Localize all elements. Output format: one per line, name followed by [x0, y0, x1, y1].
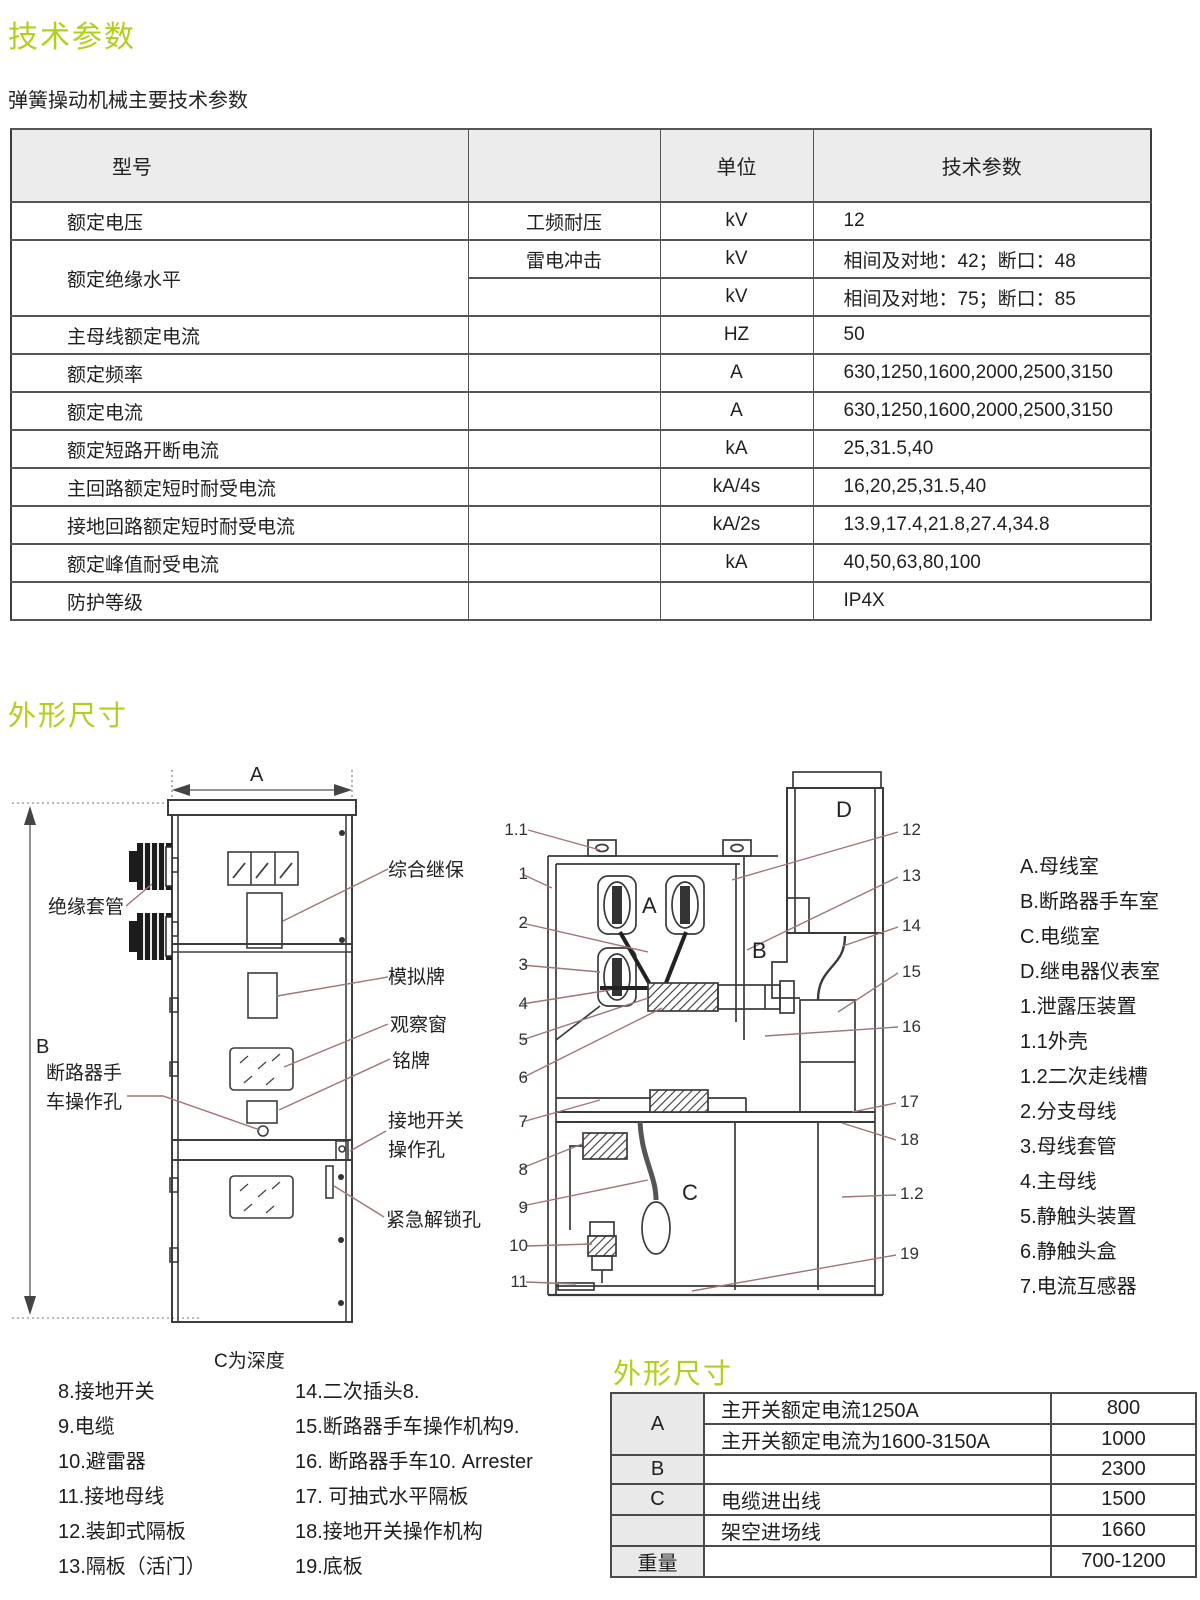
insulating-bushings	[129, 843, 172, 960]
table-row: 架空进场线 1660	[611, 1515, 1196, 1546]
legend-item: 2.分支母线	[1020, 1095, 1160, 1130]
datasheet-page: 技术参数 弹簧操动机械主要技术参数 型号 单位 技术参数 额定电压 工频耐压 k…	[0, 0, 1200, 1600]
spec-header-unit: 单位	[660, 129, 813, 202]
parts-list-right: 14.二次插头8. 15.断路器手车操作机构9. 16. 断路器手车10. Ar…	[295, 1375, 533, 1585]
legend-item: 6.静触头盒	[1020, 1235, 1160, 1270]
dim-key-c: C	[611, 1484, 704, 1515]
front-view-drawing	[12, 770, 356, 1322]
legend-item: 3.母线套管	[1020, 1130, 1160, 1165]
section-view-leader-lines	[522, 830, 898, 1291]
spec-header-params: 技术参数	[813, 129, 1151, 202]
depth-note: C为深度	[214, 1346, 285, 1373]
table-row: 额定短路开断电流 kA 25,31.5,40	[11, 430, 1151, 468]
compartment-b-label: B	[752, 938, 767, 964]
table-row: 防护等级 IP4X	[11, 582, 1151, 620]
callout-5: 5	[480, 1030, 528, 1050]
list-item: 12.装卸式隔板	[58, 1515, 206, 1550]
table-row: 额定电流 A 630,1250,1600,2000,2500,3150	[11, 392, 1151, 430]
spec-header-blank	[468, 129, 660, 202]
callout-1-1: 1.1	[480, 820, 528, 840]
label-nameplate: 铭牌	[392, 1047, 430, 1076]
table-row: B 2300	[611, 1455, 1196, 1484]
callout-6: 6	[480, 1068, 528, 1088]
callout-8: 8	[480, 1160, 528, 1180]
legend-item: 1.1外壳	[1020, 1025, 1160, 1060]
callout-3: 3	[480, 955, 528, 975]
section-title-dimensions-table: 外形尺寸	[613, 1352, 733, 1392]
legend-item: D.继电器仪表室	[1020, 955, 1160, 990]
table-row: 额定绝缘水平 雷电冲击 kV 相间及对地：42；断口：48	[11, 240, 1151, 278]
legend-item: 5.静触头装置	[1020, 1200, 1160, 1235]
legend-item: 1.2二次走线槽	[1020, 1060, 1160, 1095]
label-emergency-unlock: 紧急解锁孔	[386, 1206, 481, 1235]
legend-item: 4.主母线	[1020, 1165, 1160, 1200]
section-title-tech-params: 技术参数	[8, 12, 136, 56]
spec-header-model: 型号	[11, 129, 468, 202]
callout-1: 1	[480, 864, 528, 884]
list-item: 17. 可抽式水平隔板	[295, 1480, 533, 1515]
dim-b-letter: B	[36, 1036, 49, 1059]
legend-item: C.电缆室	[1020, 920, 1160, 955]
dim-key-weight: 重量	[611, 1546, 704, 1577]
list-item: 13.隔板（活门）	[58, 1550, 206, 1585]
compartment-d-label: D	[836, 797, 852, 823]
compartment-c-label: C	[682, 1180, 698, 1206]
spec-table: 型号 单位 技术参数 额定电压 工频耐压 kV 12 额定绝缘水平 雷电冲击 k…	[10, 128, 1152, 621]
spec-header-row: 型号 单位 技术参数	[11, 129, 1151, 202]
callout-18: 18	[900, 1130, 919, 1150]
callout-2: 2	[480, 913, 528, 933]
table-row: 主母线额定电流 HZ 50	[11, 316, 1151, 354]
compartment-a-label: A	[642, 893, 657, 919]
label-observation-window: 观察窗	[390, 1011, 447, 1040]
dim-key-a: A	[611, 1393, 704, 1455]
table-row: 额定电压 工频耐压 kV 12	[11, 202, 1151, 240]
list-item: 19.底板	[295, 1550, 533, 1585]
callout-14: 14	[902, 916, 921, 936]
label-earth-switch-hole: 接地开关 操作孔	[388, 1107, 464, 1165]
legend-item: 7.电流互感器	[1020, 1270, 1160, 1305]
table-row: A 主开关额定电流1250A 800	[611, 1393, 1196, 1424]
label-mimic-board: 模拟牌	[388, 963, 445, 992]
callout-11: 11	[480, 1272, 528, 1292]
list-item: 11.接地母线	[58, 1480, 206, 1515]
callout-15: 15	[902, 962, 921, 982]
callout-19: 19	[900, 1244, 919, 1264]
callout-16: 16	[902, 1017, 921, 1037]
callout-10: 10	[480, 1236, 528, 1256]
table-row: 额定频率 A 630,1250,1600,2000,2500,3150	[11, 354, 1151, 392]
legend-item: A.母线室	[1020, 850, 1160, 885]
parts-list-left: 8.接地开关 9.电缆 10.避雷器 11.接地母线 12.装卸式隔板 13.隔…	[58, 1375, 206, 1585]
legend-item: 1.泄露压装置	[1020, 990, 1160, 1025]
list-item: 15.断路器手车操作机构9.	[295, 1410, 533, 1445]
callout-9: 9	[480, 1198, 528, 1218]
list-item: 10.避雷器	[58, 1445, 206, 1480]
dim-a-letter: A	[250, 764, 263, 787]
callout-13: 13	[902, 866, 921, 886]
callout-4: 4	[480, 994, 528, 1014]
legend-item: B.断路器手车室	[1020, 885, 1160, 920]
table-row: 额定峰值耐受电流 kA 40,50,63,80,100	[11, 544, 1151, 582]
callout-12: 12	[902, 820, 921, 840]
spec-table-caption: 弹簧操动机械主要技术参数	[8, 84, 248, 113]
table-row: 主回路额定短时耐受电流 kA/4s 16,20,25,31.5,40	[11, 468, 1151, 506]
table-row: C 电缆进出线 1500	[611, 1484, 1196, 1515]
callout-7: 7	[480, 1112, 528, 1132]
list-item: 18.接地开关操作机构	[295, 1515, 533, 1550]
label-relay: 综合继保	[388, 856, 464, 885]
label-breaker-truck-hole: 断路器手 车操作孔	[46, 1059, 122, 1117]
table-row: 接地回路额定短时耐受电流 kA/2s 13.9,17.4,21.8,27.4,3…	[11, 506, 1151, 544]
dimensions-table: A 主开关额定电流1250A 800 主开关额定电流为1600-3150A 10…	[610, 1392, 1197, 1578]
compartment-legend: A.母线室 B.断路器手车室 C.电缆室 D.继电器仪表室 1.泄露压装置 1.…	[1020, 850, 1160, 1305]
dim-key-b: B	[611, 1455, 704, 1484]
callout-17: 17	[900, 1092, 919, 1112]
list-item: 14.二次插头8.	[295, 1375, 533, 1410]
list-item: 9.电缆	[58, 1410, 206, 1445]
table-row: 重量 700-1200	[611, 1546, 1196, 1577]
label-insulating-bushing: 绝缘套管	[48, 893, 124, 922]
callout-1-2: 1.2	[900, 1184, 924, 1204]
list-item: 16. 断路器手车10. Arrester	[295, 1445, 533, 1480]
list-item: 8.接地开关	[58, 1375, 206, 1410]
